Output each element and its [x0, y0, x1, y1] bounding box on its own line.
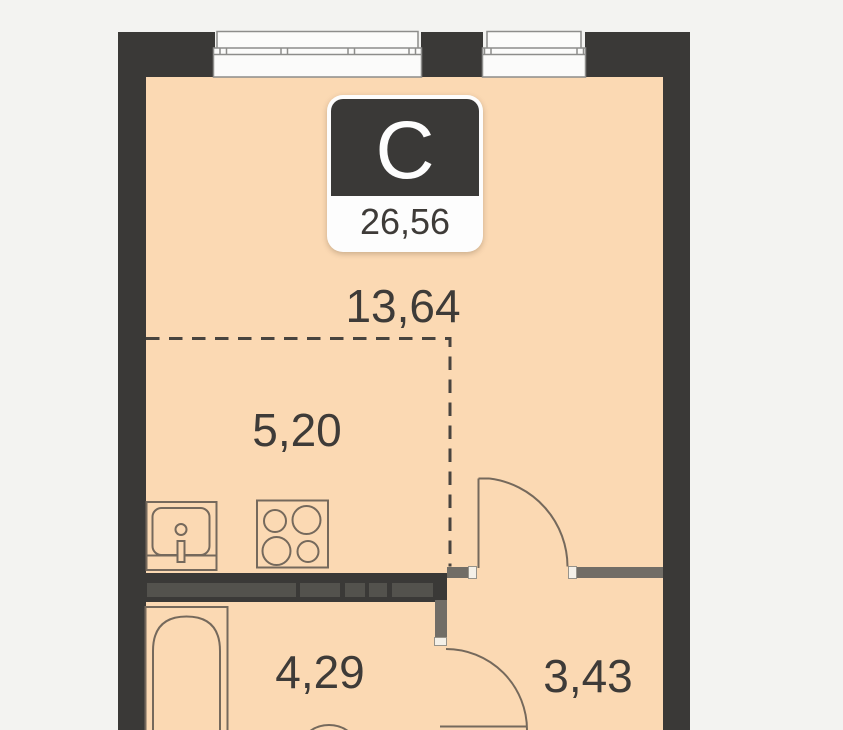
unit-type-letter: С — [375, 110, 434, 192]
unit-type-badge-inner: С 26,56 — [331, 99, 479, 248]
wall-right-exterior — [663, 32, 690, 730]
wall-inset-segment — [369, 583, 387, 597]
door-jamb — [434, 637, 447, 646]
wall-hallway-right — [577, 567, 663, 578]
wall-inset-segment — [392, 583, 433, 597]
wall-top-middle-pier — [421, 32, 483, 77]
wall-inset-segment — [147, 583, 296, 597]
floorplan-canvas: С 26,56 13,64 5,20 4,29 3,43 — [0, 0, 843, 730]
area-label-hallway: 3,43 — [543, 649, 633, 703]
wall-bathroom-vertical — [435, 600, 447, 638]
area-label-living: 13,64 — [345, 279, 460, 333]
area-label-bathroom: 4,29 — [275, 645, 365, 699]
area-label-kitchen: 5,20 — [252, 403, 342, 457]
door-jamb — [468, 566, 477, 579]
wall-left-exterior — [118, 32, 146, 730]
window-icon — [483, 32, 586, 78]
unit-type-letter-panel: С — [331, 99, 479, 196]
unit-total-area: 26,56 — [360, 201, 450, 243]
window-icon — [214, 32, 422, 78]
unit-total-area-panel: 26,56 — [331, 196, 479, 248]
door-jamb — [568, 566, 577, 579]
wall-inset-segment — [300, 583, 340, 597]
unit-type-badge: С 26,56 — [327, 95, 483, 252]
wall-inset-segment — [345, 583, 365, 597]
